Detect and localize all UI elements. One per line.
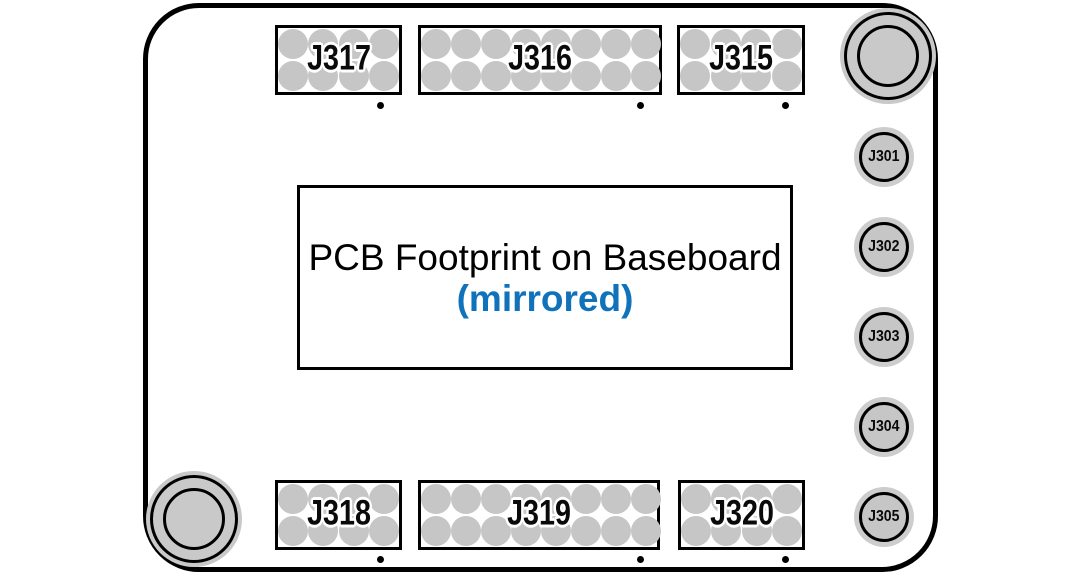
- connector-label: J318: [307, 493, 371, 533]
- pin-pad-cell: [601, 60, 631, 92]
- connector-j320: J320: [678, 480, 805, 550]
- pin-pad: [681, 484, 711, 514]
- mounting-hole-2: [146, 471, 242, 567]
- pin-pad: [451, 29, 481, 59]
- pin-pad: [369, 484, 399, 514]
- pin-pad: [278, 29, 308, 59]
- pin-pad-cell: [481, 28, 511, 60]
- connector-label: J301: [868, 148, 899, 166]
- pin-pad-cell: [631, 28, 661, 60]
- pin-pad: [451, 516, 481, 546]
- pin-pad: [451, 61, 481, 91]
- pin-pad-cell: [571, 28, 601, 60]
- pin1-dot: [637, 556, 644, 563]
- pin-pad-cell: [631, 60, 661, 92]
- connector-label: J302: [868, 238, 899, 256]
- connector-j305: J305: [854, 487, 914, 547]
- pin-pad: [421, 516, 451, 546]
- pin-pad: [571, 61, 601, 91]
- connector-label: J315: [709, 38, 773, 78]
- pin-pad-cell: [451, 28, 481, 60]
- connector-j302: J302: [854, 217, 914, 277]
- pin-pad-cell: [369, 483, 399, 515]
- pin1-dot: [637, 102, 644, 109]
- pin-pad: [421, 29, 451, 59]
- pin-pad-cell: [680, 28, 711, 60]
- pin-pad: [571, 484, 601, 514]
- pin-pad: [681, 516, 711, 546]
- mounting-hole-inner-ring: [163, 488, 225, 550]
- pin-pad-cell: [369, 60, 399, 92]
- connector-j315: J315: [677, 25, 805, 95]
- connector-j319: J319: [418, 480, 660, 550]
- pin-pad-cell: [571, 515, 601, 547]
- pin-pad: [772, 29, 802, 59]
- pin-pad: [451, 484, 481, 514]
- pin-pad-cell: [451, 60, 481, 92]
- connector-label: J304: [868, 418, 899, 436]
- pin-pad-cell: [601, 515, 631, 547]
- pin-pad-cell: [680, 60, 711, 92]
- pin-pad-cell: [601, 483, 631, 515]
- connector-j301: J301: [854, 127, 914, 187]
- pin-pad: [571, 29, 601, 59]
- pin1-dot: [782, 556, 789, 563]
- connector-ring: J305: [859, 492, 909, 542]
- pin-pad: [631, 484, 661, 514]
- pin-pad: [601, 516, 631, 546]
- connector-ring: J302: [859, 222, 909, 272]
- connector-j317: J317: [275, 25, 402, 95]
- pin-pad: [631, 61, 661, 91]
- connector-label: J303: [868, 328, 899, 346]
- pin-pad: [601, 61, 631, 91]
- pin-pad: [421, 61, 451, 91]
- pin-pad-cell: [421, 515, 451, 547]
- connector-label: J319: [507, 493, 571, 533]
- connector-label: J316: [508, 38, 572, 78]
- connector-ring: J303: [859, 312, 909, 362]
- pin-pad: [369, 516, 399, 546]
- connector-label: J305: [868, 508, 899, 526]
- pin-pad: [278, 61, 308, 91]
- pin-pad: [772, 61, 802, 91]
- pin-pad: [369, 29, 399, 59]
- pin-pad-cell: [278, 483, 308, 515]
- pin-pad: [631, 516, 661, 546]
- pin-pad-cell: [278, 515, 308, 547]
- pin1-dot: [377, 556, 384, 563]
- pin-pad-cell: [631, 483, 661, 515]
- connector-j304: J304: [854, 397, 914, 457]
- mirrored-note: (mirrored): [457, 278, 634, 319]
- connector-label: J320: [710, 493, 774, 533]
- pin-pad-cell: [481, 60, 511, 92]
- title-text: PCB Footprint on Baseboard: [308, 237, 781, 278]
- pin-pad: [680, 29, 710, 59]
- pin-pad-cell: [421, 483, 451, 515]
- pin-pad: [772, 484, 802, 514]
- pin-pad: [278, 516, 308, 546]
- pin-pad-cell: [772, 28, 803, 60]
- pin-pad: [601, 484, 631, 514]
- pin-pad: [680, 61, 710, 91]
- connector-ring: J301: [859, 132, 909, 182]
- pin-pad-cell: [681, 515, 711, 547]
- pin-pad: [481, 61, 511, 91]
- pin-pad: [481, 29, 511, 59]
- pin-pad: [278, 484, 308, 514]
- pin-pad-cell: [681, 483, 711, 515]
- pin-pad-cell: [278, 60, 308, 92]
- pin1-dot: [782, 102, 789, 109]
- mounting-hole-inner-ring: [857, 25, 919, 87]
- title-box: PCB Footprint on Baseboard (mirrored): [297, 185, 793, 370]
- pin-pad: [631, 29, 661, 59]
- pin-pad-cell: [421, 28, 451, 60]
- pin1-dot: [377, 102, 384, 109]
- connector-j318: J318: [275, 480, 402, 550]
- pin-pad: [601, 29, 631, 59]
- pin-pad-cell: [772, 483, 802, 515]
- pin-pad: [421, 484, 451, 514]
- pcb-diagram: PCB Footprint on Baseboard (mirrored) J3…: [0, 0, 1080, 575]
- pin-pad: [571, 516, 601, 546]
- pin-pad-cell: [571, 60, 601, 92]
- pin-pad-cell: [369, 515, 399, 547]
- pin-pad-cell: [451, 483, 481, 515]
- pin-pad-cell: [571, 483, 601, 515]
- connector-label: J317: [307, 38, 371, 78]
- connector-j303: J303: [854, 307, 914, 367]
- pin-pad-cell: [369, 28, 399, 60]
- pin-pad-cell: [772, 60, 803, 92]
- mounting-hole-1: [840, 8, 936, 104]
- pin-pad-cell: [772, 515, 802, 547]
- pin-pad-cell: [278, 28, 308, 60]
- connector-ring: J304: [859, 402, 909, 452]
- pin-pad-cell: [451, 515, 481, 547]
- connector-j316: J316: [418, 25, 662, 95]
- pin-pad-cell: [601, 28, 631, 60]
- pin-pad: [772, 516, 802, 546]
- pin-pad: [369, 61, 399, 91]
- pin-pad-cell: [421, 60, 451, 92]
- pin-pad-cell: [631, 515, 661, 547]
